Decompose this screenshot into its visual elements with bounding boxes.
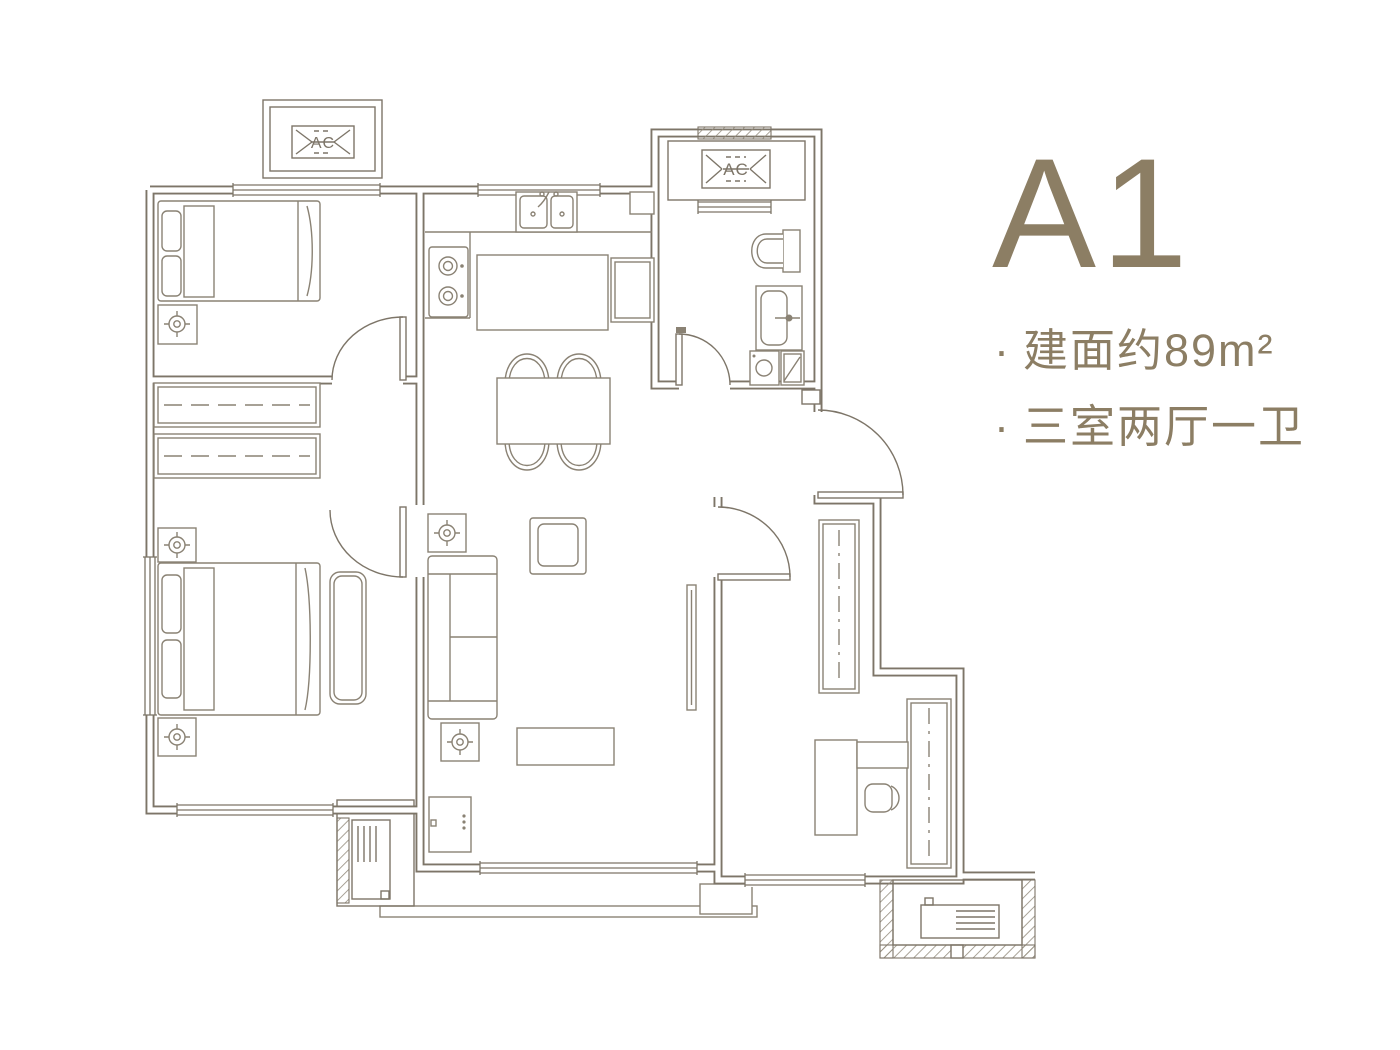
dining-table-icon	[497, 378, 610, 444]
nightstand-icon	[158, 718, 196, 756]
dining-area	[497, 354, 610, 470]
floor-lamp-icon	[441, 723, 479, 761]
floor-lamp-icon	[428, 514, 466, 552]
info-panel: A1 ·建面约89m² ·三室两厅一卫	[992, 136, 1305, 480]
wall-switch-icon	[676, 327, 686, 333]
bullet-dot: ·	[994, 401, 1011, 452]
study-room	[815, 520, 951, 868]
kitchen	[425, 192, 654, 330]
door-swing-icon	[332, 317, 406, 380]
page: AC AC	[0, 0, 1400, 1050]
bed-icon	[158, 201, 320, 301]
toilet-icon	[752, 230, 800, 272]
desk-chair-icon	[865, 784, 899, 812]
entry-door-swing-icon	[818, 410, 903, 498]
tv-icon	[687, 585, 696, 710]
window	[698, 200, 771, 214]
bedroom-secondary	[158, 201, 320, 344]
closet-icon	[907, 699, 951, 868]
unit-title: A1	[992, 136, 1305, 292]
sofa-icon	[428, 556, 497, 719]
balcony-ledge	[380, 884, 757, 917]
spec-area-text: 建面约89m²	[1023, 325, 1275, 376]
window	[143, 557, 157, 715]
spec-layout: ·三室两厅一卫	[994, 404, 1305, 449]
window	[745, 873, 865, 887]
bullet-dot: ·	[994, 325, 1011, 376]
ac-unit-icon: AC	[702, 150, 770, 188]
kitchen-island	[477, 255, 608, 330]
nightstand-icon	[158, 305, 197, 344]
closet-icon	[819, 520, 859, 693]
window	[233, 183, 380, 197]
door-swing-icon	[718, 507, 790, 580]
wardrobe-icon	[154, 383, 320, 427]
bathroom-sink-icon	[756, 286, 802, 350]
washing-machine-icon	[750, 351, 779, 385]
window	[177, 803, 333, 817]
wardrobe-icon	[154, 434, 320, 478]
fridge-icon	[611, 258, 654, 322]
tv-cabinet-icon	[429, 797, 471, 852]
entry-pier	[802, 390, 820, 404]
door-swing-icon	[676, 334, 730, 385]
door-swing-icon	[330, 507, 406, 577]
ac-outdoor-unit-icon	[921, 898, 999, 938]
unit-specs: ·建面约89m² ·三室两厅一卫	[994, 328, 1305, 449]
bathroom	[676, 230, 804, 385]
stove-icon	[429, 247, 468, 317]
mop-sink-icon	[781, 351, 804, 385]
bench-icon	[330, 572, 366, 704]
ac-label: AC	[311, 135, 335, 152]
armchair-icon	[530, 518, 586, 574]
nightstand-icon	[158, 528, 196, 562]
ac-platform-bottom-right	[893, 880, 1022, 945]
spec-area: ·建面约89m²	[994, 328, 1305, 373]
living-room	[428, 514, 696, 852]
window	[480, 861, 697, 875]
bed-icon	[158, 563, 320, 715]
spec-layout-text: 三室两厅一卫	[1023, 401, 1305, 452]
master-bedroom	[158, 528, 366, 756]
ac-unit-icon: AC	[292, 126, 354, 158]
flue-icon	[630, 192, 654, 214]
kitchen-sink-icon	[516, 192, 577, 232]
ac-outdoor-unit-icon	[352, 820, 390, 899]
ac-platform-top-right: AC	[668, 141, 805, 200]
ac-platform-top-left: AC	[263, 100, 382, 178]
coffee-table-icon	[517, 728, 614, 765]
